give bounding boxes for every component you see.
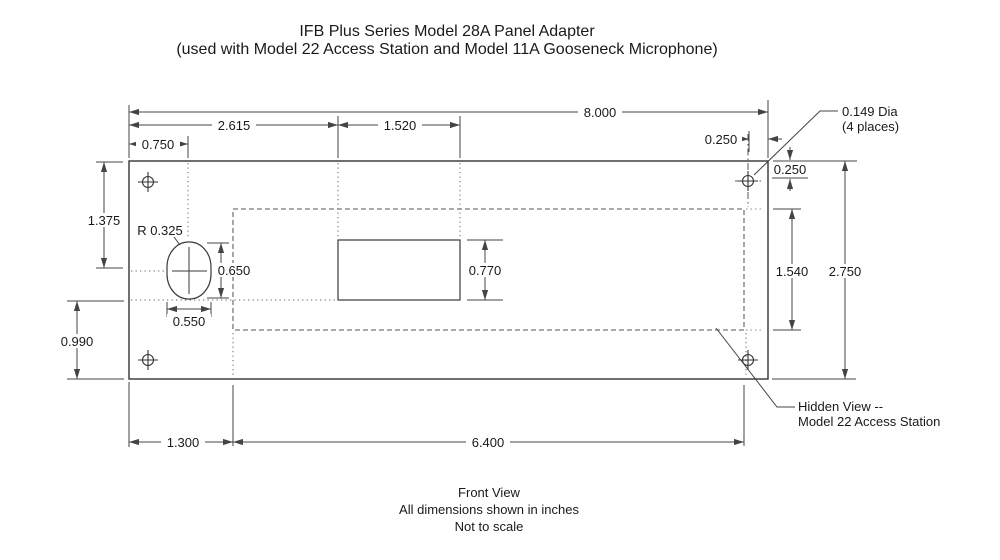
label-ref-from-bottom: 0.990 <box>61 334 94 349</box>
note-hole-dia-line2: (4 places) <box>842 119 899 134</box>
label-slot-center-from-top: 1.375 <box>88 213 121 228</box>
label-hole-offset-left: 0.750 <box>142 137 175 152</box>
slot-obround <box>167 242 211 299</box>
label-cutout-width: 1.520 <box>384 118 417 133</box>
label-slot-width: 0.550 <box>173 314 206 329</box>
note-hole-dia-line1: 0.149 Dia <box>842 104 898 119</box>
mounting-hole-bottom-left <box>138 350 158 370</box>
label-panel-width: 8.000 <box>584 105 617 120</box>
label-hole-offset-top: 0.250 <box>774 162 807 177</box>
hidden-line-continuations <box>746 209 763 330</box>
footer-view: Front View <box>458 485 521 500</box>
note-hidden-view-line2: Model 22 Access Station <box>798 414 940 429</box>
annotations: 0.149 Dia (4 places) Hidden View -- Mode… <box>798 104 940 429</box>
footer: Front View All dimensions shown in inche… <box>399 485 579 534</box>
note-hidden-view-line1: Hidden View -- <box>798 399 883 414</box>
label-pocket-width: 6.400 <box>472 435 505 450</box>
drawing-subtitle: (used with Model 22 Access Station and M… <box>176 41 717 58</box>
footer-scale: Not to scale <box>455 519 524 534</box>
extension-lines <box>67 100 857 447</box>
mic-cutout-rect <box>338 240 460 300</box>
leader-slot-radius <box>174 237 180 245</box>
label-panel-height: 2.750 <box>829 264 862 279</box>
label-pocket-from-left: 1.300 <box>167 435 200 450</box>
leader-lines <box>174 111 838 407</box>
dimension-labels: 8.000 2.615 1.520 0.750 0.250 0.250 1.54… <box>61 105 862 450</box>
mounting-hole-top-left <box>138 172 158 192</box>
label-slot-radius: R 0.325 <box>137 223 183 238</box>
label-slot-height: 0.650 <box>218 263 251 278</box>
label-pocket-height: 1.540 <box>776 264 809 279</box>
leader-hidden-view <box>716 328 795 407</box>
footer-units: All dimensions shown in inches <box>399 502 579 517</box>
label-cutout-from-left: 2.615 <box>218 118 251 133</box>
drawing-page: IFB Plus Series Model 28A Panel Adapter … <box>0 0 1000 560</box>
label-hole-offset-right: 0.250 <box>705 132 738 147</box>
panel-adapter-drawing: IFB Plus Series Model 28A Panel Adapter … <box>0 0 1000 560</box>
drawing-title: IFB Plus Series Model 28A Panel Adapter <box>299 23 595 40</box>
label-cutout-height: 0.770 <box>469 263 502 278</box>
label-backgrounds <box>55 105 867 449</box>
